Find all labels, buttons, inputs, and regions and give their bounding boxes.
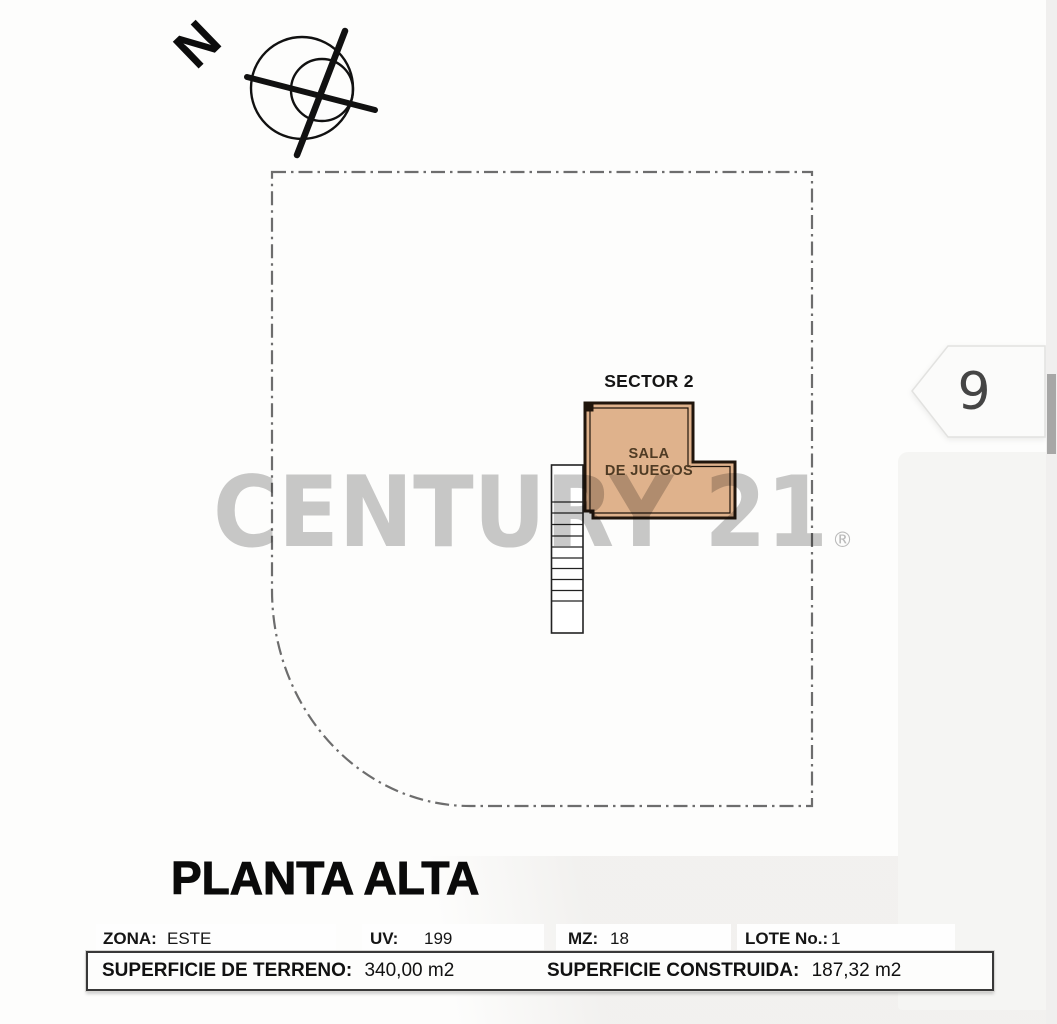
built-area-value: 187,32 m2: [812, 960, 902, 981]
lote-value: 1: [831, 927, 840, 951]
mz-value: 18: [610, 927, 629, 951]
floor-plan-drawing: N: [0, 0, 1057, 1024]
built-area-label: SUPERFICIE CONSTRUIDA:: [547, 960, 799, 981]
wall-corner-detail: [586, 404, 594, 412]
scrollbar-thumb[interactable]: [1047, 374, 1056, 454]
mz-label: MZ:: [568, 927, 598, 951]
area-summary-box: SUPERFICIE DE TERRENO: 340,00 m2 SUPERFI…: [86, 951, 994, 991]
built-area: SUPERFICIE CONSTRUIDA: 187,32 m2: [547, 953, 901, 989]
sector-label: SECTOR 2: [574, 371, 724, 392]
plan-document-page: { "compass": { "n_label": "N" }, "plan":…: [0, 0, 1057, 1024]
page-title: PLANTA ALTA: [171, 851, 479, 905]
uv-value: 199: [424, 927, 452, 951]
north-letter: N: [163, 9, 233, 79]
zona-label: ZONA:: [103, 927, 157, 951]
page-number: 9: [938, 361, 1010, 423]
scrollbar[interactable]: [1046, 0, 1057, 1024]
uv-label: UV:: [370, 927, 398, 951]
terrain-area: SUPERFICIE DE TERRENO: 340,00 m2: [102, 953, 454, 989]
terrain-area-label: SUPERFICIE DE TERRENO:: [102, 960, 352, 981]
zona-value: ESTE: [167, 927, 211, 951]
room-name-line1: SALA: [574, 446, 724, 462]
lote-label: LOTE No.:: [745, 927, 828, 951]
staircase: [552, 465, 584, 633]
room-name-line2: DE JUEGOS: [574, 463, 724, 479]
terrain-area-value: 340,00 m2: [364, 960, 454, 981]
north-arrow-icon: N: [163, 9, 375, 155]
